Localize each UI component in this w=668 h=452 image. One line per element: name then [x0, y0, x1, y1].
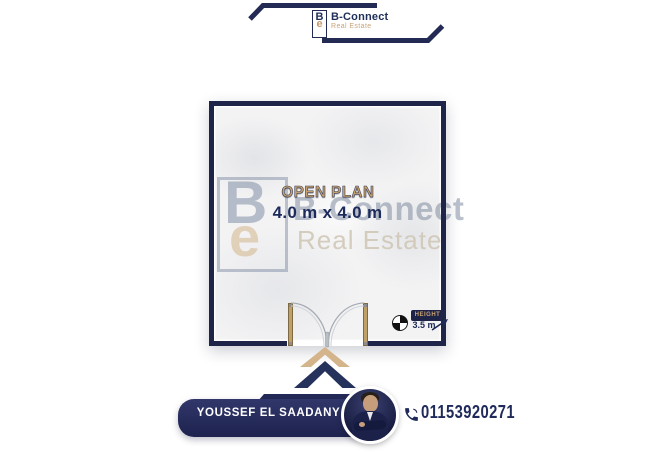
- brand-name: B-Connect: [331, 11, 388, 23]
- agent-phone-number: 01153920271: [421, 402, 515, 423]
- brand-logo-icon: B e: [312, 10, 327, 38]
- avatar-hand: [359, 422, 365, 427]
- avatar-face: [363, 395, 378, 412]
- wall-top: [209, 101, 446, 106]
- agent-photo: [341, 386, 399, 444]
- wall-bottom-right: [368, 341, 446, 346]
- height-value: 3.5 m: [408, 320, 440, 330]
- door-leaf-left: [288, 303, 293, 346]
- room-dimensions: 4.0 m x 4.0 m: [214, 203, 441, 223]
- room-label: OPEN PLAN: [281, 184, 374, 202]
- room-label-group: OPEN PLAN 4.0 m x 4.0 m: [214, 184, 441, 223]
- flyer-canvas: B e B-Connect Real Estate B e B-Connect …: [0, 0, 668, 452]
- room-floor: [214, 106, 441, 341]
- agent-name: YOUSSEF EL SAADANY: [186, 407, 351, 419]
- wall-bottom-left: [209, 341, 287, 346]
- brand-tagline: Real Estate: [331, 23, 372, 30]
- door-leaf-right: [363, 303, 368, 346]
- phone-icon: [403, 406, 420, 423]
- logo-monogram-bottom: e: [313, 19, 326, 30]
- wall-left: [209, 101, 214, 346]
- header-frame-lines: [0, 0, 668, 60]
